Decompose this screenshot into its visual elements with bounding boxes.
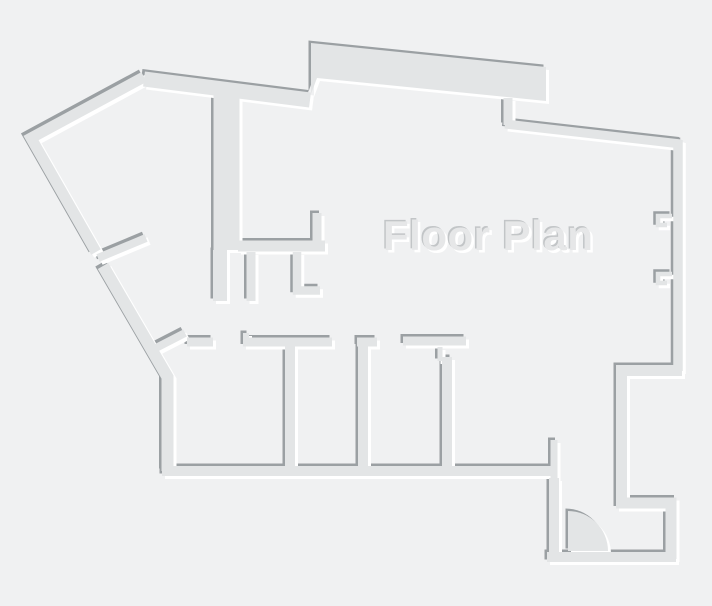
wall-fill-layer [31, 43, 682, 560]
floor-plan-title: Floor Plan [383, 212, 593, 260]
floor-plan-svg [0, 0, 712, 606]
floor-plan-canvas: Floor Plan [0, 0, 712, 606]
